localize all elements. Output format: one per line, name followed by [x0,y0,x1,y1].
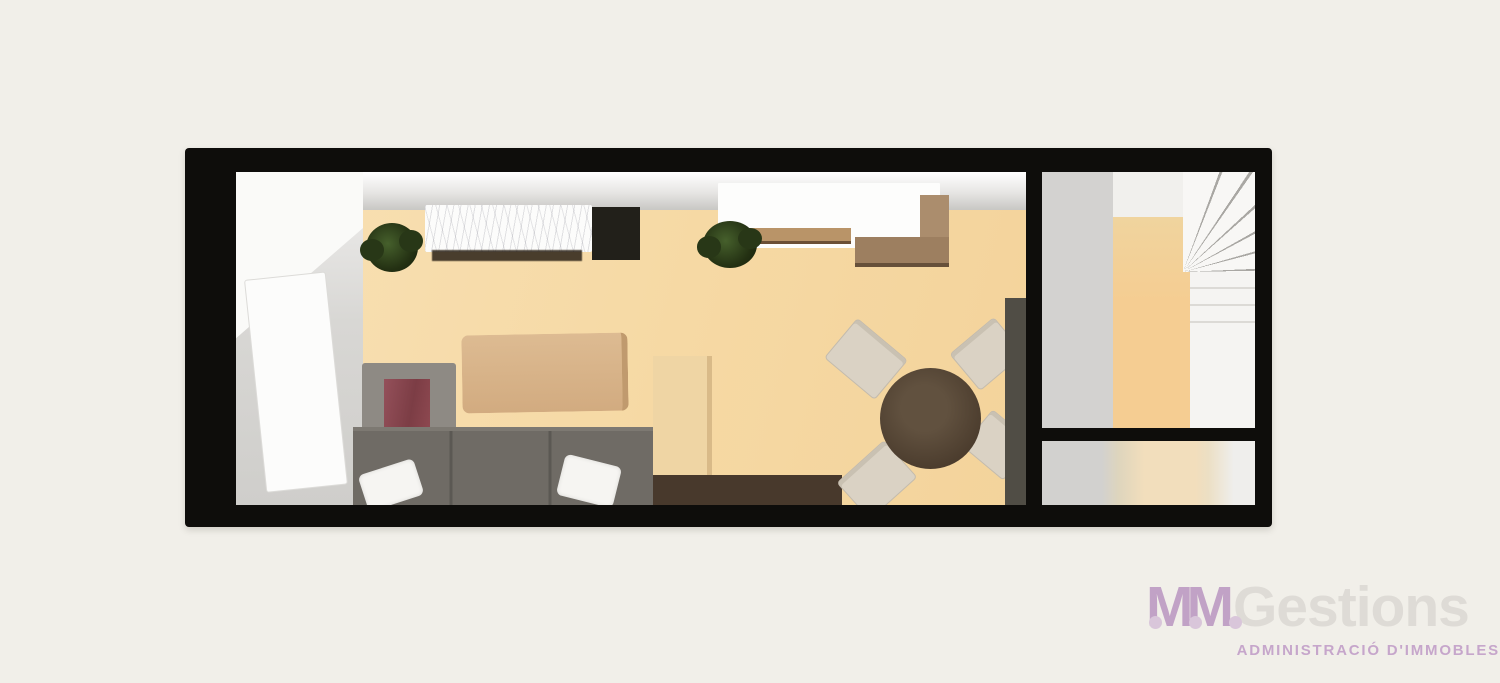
dark-sideboard [653,475,842,505]
logo-dot-icon [1149,616,1162,629]
tan-side-cabinet [653,356,712,476]
logo-row: MM Gestions [1146,583,1500,635]
logo-tagline: ADMINISTRACIÓ D'IMMOBLES [1146,642,1500,659]
logo-brand-name: Gestions [1233,583,1469,631]
marble-kitchen-counter [425,205,592,252]
potted-plant [366,223,418,272]
room-staircase [1042,172,1255,428]
potted-plant [703,221,757,268]
logo-monogram-text: MM [1146,575,1227,639]
counter-shadow [432,250,582,261]
room-living-dining-kitchen [236,172,1026,505]
agency-logo: MM Gestions ADMINISTRACIÓ D'IMMOBLES [1146,583,1500,667]
winder-staircase-fan [1183,172,1255,272]
logo-dot-icon [1189,616,1202,629]
wood-coffee-table [461,333,628,414]
room-lower-right [1042,441,1255,505]
stair-landing-top [1113,172,1190,217]
stair-landing-floor [1113,217,1190,428]
logo-dot-icon [1229,616,1242,629]
tall-cabinet [1005,298,1026,505]
dark-cabinet-block [592,207,640,260]
staircase-steps [1190,272,1255,336]
logo-monogram: MM [1146,583,1233,631]
red-cushion [384,379,430,427]
wood-corner-unit-horizontal [855,237,949,267]
round-dining-table [880,368,981,469]
floorplan-image [185,148,1272,527]
